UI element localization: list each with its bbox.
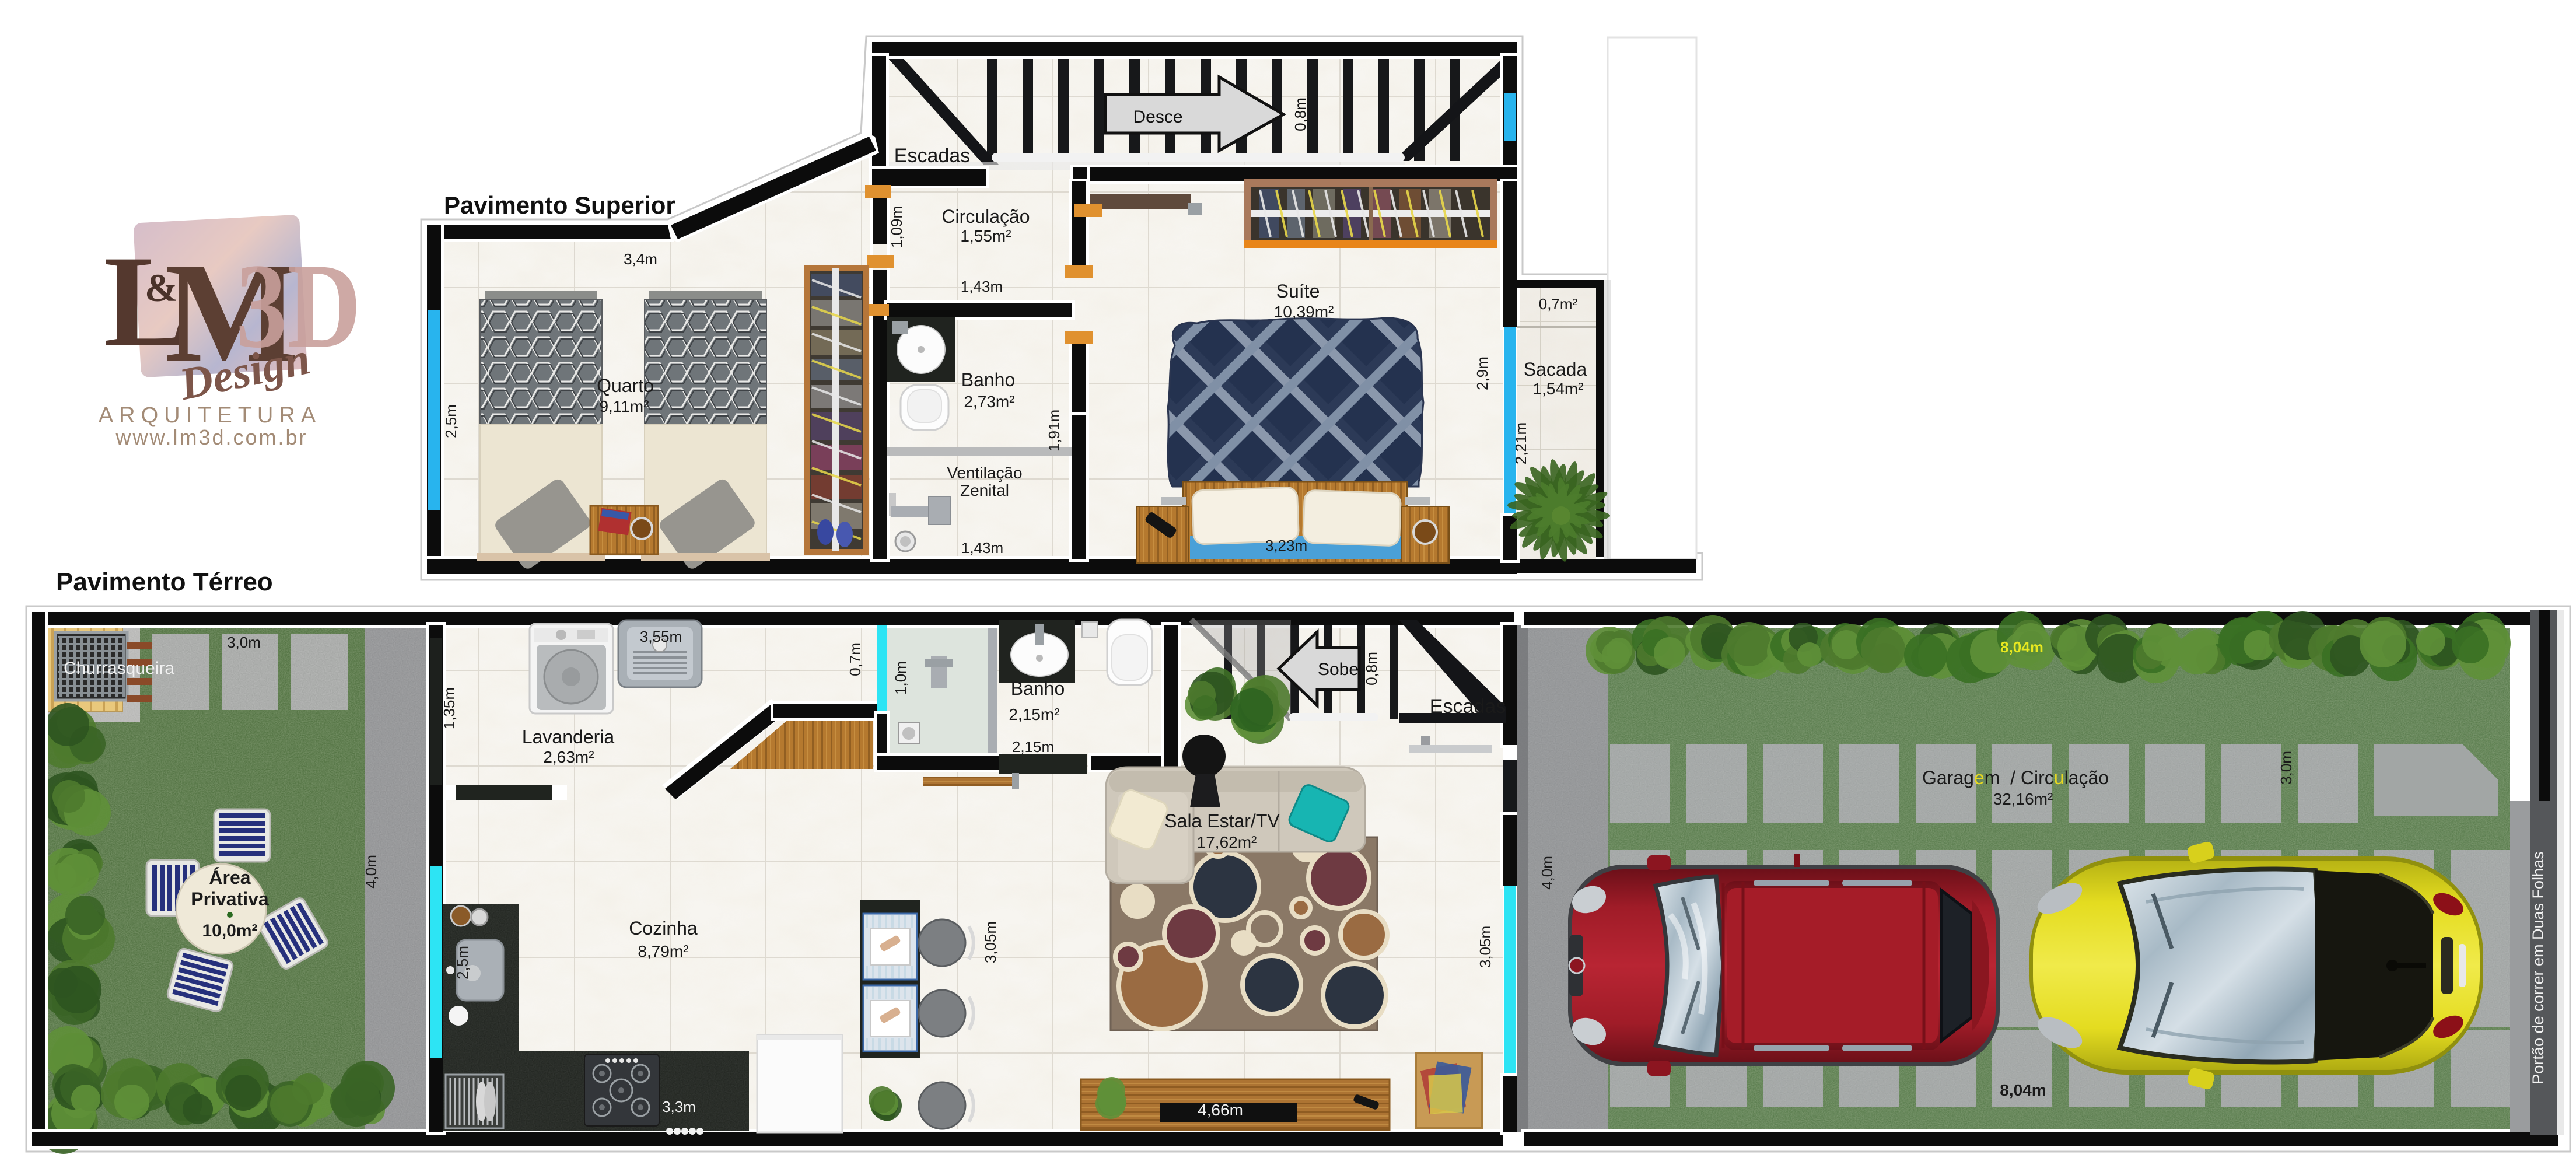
svg-text:Sacada: Sacada	[1524, 359, 1587, 380]
svg-text:3,55m: 3,55m	[640, 628, 682, 645]
svg-text:0,8m: 0,8m	[1363, 652, 1380, 686]
svg-text:Pavimento Superior: Pavimento Superior	[444, 191, 675, 219]
svg-text:2,21m: 2,21m	[1512, 422, 1529, 464]
svg-text:Churrasqueira: Churrasqueira	[64, 659, 174, 678]
svg-text:Pavimento Térreo: Pavimento Térreo	[56, 568, 273, 596]
svg-text:8,79m²: 8,79m²	[638, 942, 688, 960]
svg-text:Cozinha: Cozinha	[629, 918, 698, 939]
svg-text:2,15m: 2,15m	[1012, 738, 1054, 756]
svg-text:&: &	[145, 265, 178, 310]
svg-text:2,9m: 2,9m	[1473, 356, 1491, 390]
svg-text:www.lm3d.com.br: www.lm3d.com.br	[115, 425, 307, 449]
svg-text:Desce: Desce	[1133, 107, 1182, 127]
svg-text:Banho: Banho	[961, 369, 1016, 390]
svg-text:4,0m: 4,0m	[362, 855, 380, 889]
svg-text:2,5m: 2,5m	[454, 946, 471, 980]
svg-text:3,0m: 3,0m	[2277, 751, 2295, 785]
svg-text:2,15m²: 2,15m²	[1009, 705, 1059, 723]
svg-text:Quarto: Quarto	[597, 375, 654, 396]
svg-text:10,0m²: 10,0m²	[202, 921, 257, 940]
svg-text:Garagem / Circulação: Garagem / Circulação	[1922, 767, 2109, 788]
svg-text:3,23m: 3,23m	[1265, 537, 1307, 554]
svg-text:32,16m²: 32,16m²	[1993, 790, 2053, 808]
svg-text:Sobe: Sobe	[1318, 660, 1359, 679]
svg-text:1,54m²: 1,54m²	[1532, 380, 1583, 398]
svg-text:10,39m²: 10,39m²	[1274, 303, 1334, 321]
svg-text:1,09m: 1,09m	[888, 206, 905, 248]
svg-text:4,66m: 4,66m	[1198, 1101, 1243, 1119]
svg-text:0,8m: 0,8m	[1291, 97, 1309, 131]
svg-text:1,35m: 1,35m	[440, 687, 458, 729]
svg-text:Lavanderia: Lavanderia	[522, 726, 615, 747]
svg-text:Área: Área	[209, 867, 250, 888]
svg-text:3,05m: 3,05m	[1476, 926, 1494, 968]
svg-text:2,5m: 2,5m	[442, 404, 460, 438]
svg-text:4,0m: 4,0m	[1538, 856, 1556, 890]
svg-text:ARQUITETURA: ARQUITETURA	[99, 403, 321, 428]
svg-text:3,05m: 3,05m	[982, 921, 999, 963]
svg-text:2,73m²: 2,73m²	[964, 393, 1014, 411]
svg-text:Sala Estar/TV: Sala Estar/TV	[1164, 810, 1280, 831]
svg-text:1,91m: 1,91m	[1045, 410, 1063, 452]
svg-text:1,0m: 1,0m	[892, 661, 909, 695]
svg-text:17,62m²: 17,62m²	[1197, 833, 1257, 851]
svg-text:Privativa: Privativa	[191, 889, 269, 910]
svg-text:Banho: Banho	[1011, 678, 1065, 699]
svg-text:3,3m: 3,3m	[662, 1098, 696, 1115]
svg-text:Escadas: Escadas	[1430, 695, 1506, 718]
svg-text:0,7m²: 0,7m²	[1539, 295, 1578, 313]
svg-text:Portão de correr em Duas Folha: Portão de correr em Duas Folhas	[2529, 851, 2547, 1084]
svg-text:Circulação: Circulação	[942, 206, 1030, 227]
svg-text:1,43m: 1,43m	[961, 539, 1003, 557]
svg-text:Ventilação: Ventilação	[947, 464, 1022, 482]
svg-text:3,0m: 3,0m	[227, 634, 261, 651]
svg-text:Suíte: Suíte	[1276, 281, 1320, 302]
svg-text:Zenital: Zenital	[960, 481, 1009, 499]
svg-text:Escadas: Escadas	[894, 145, 970, 167]
svg-text:3,4m: 3,4m	[624, 250, 657, 268]
svg-text:2,63m²: 2,63m²	[543, 748, 594, 766]
svg-text:0,7m: 0,7m	[846, 642, 864, 676]
svg-text:8,04m: 8,04m	[2000, 638, 2043, 656]
svg-text:1,43m: 1,43m	[961, 278, 1003, 295]
svg-text:9,11m²: 9,11m²	[599, 397, 649, 415]
svg-text:8,04m: 8,04m	[2000, 1081, 2046, 1099]
svg-text:1,55m²: 1,55m²	[960, 227, 1011, 245]
